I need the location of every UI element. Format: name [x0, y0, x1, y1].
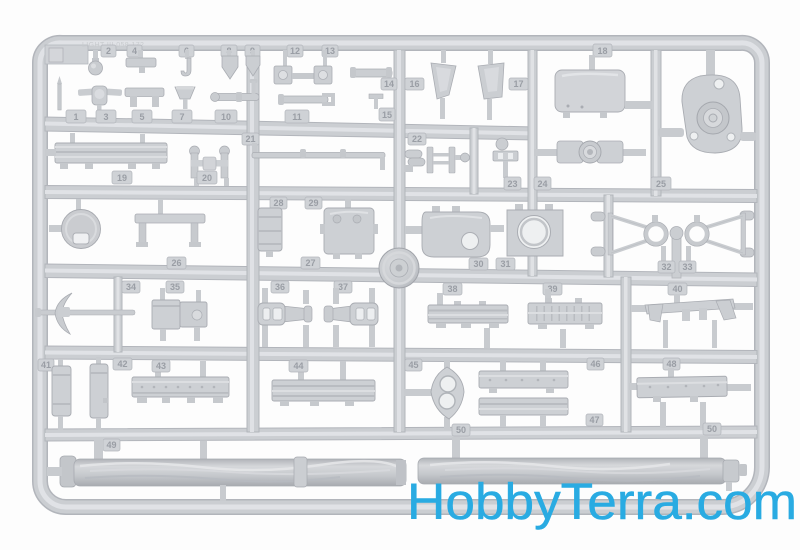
svg-text:17: 17 [513, 79, 523, 89]
svg-text:43: 43 [156, 361, 166, 371]
svg-text:35: 35 [170, 282, 180, 292]
svg-text:7: 7 [179, 112, 184, 122]
svg-text:36: 36 [275, 282, 285, 292]
svg-text:25: 25 [656, 179, 666, 189]
svg-text:4: 4 [132, 46, 137, 56]
svg-text:16: 16 [409, 79, 419, 89]
svg-text:18: 18 [597, 46, 607, 56]
svg-text:50: 50 [707, 424, 717, 434]
svg-text:47: 47 [589, 415, 599, 425]
svg-text:21: 21 [245, 134, 255, 144]
svg-text:11: 11 [292, 112, 302, 122]
svg-text:46: 46 [590, 359, 600, 369]
svg-text:15: 15 [382, 110, 392, 120]
svg-text:26: 26 [171, 258, 181, 268]
svg-text:27: 27 [305, 258, 315, 268]
svg-text:28: 28 [273, 198, 283, 208]
svg-text:12: 12 [290, 46, 300, 56]
svg-text:24: 24 [537, 179, 547, 189]
svg-text:40: 40 [672, 284, 682, 294]
svg-text:41: 41 [41, 360, 51, 370]
svg-text:44: 44 [293, 361, 303, 371]
svg-text:23: 23 [507, 179, 517, 189]
svg-text:45: 45 [408, 360, 418, 370]
svg-text:38: 38 [447, 284, 457, 294]
svg-text:29: 29 [308, 198, 318, 208]
svg-text:49: 49 [106, 440, 116, 450]
svg-text:2: 2 [106, 46, 111, 56]
svg-text:22: 22 [412, 134, 422, 144]
svg-text:5: 5 [139, 112, 144, 122]
svg-text:37: 37 [338, 282, 348, 292]
svg-text:34: 34 [126, 282, 136, 292]
svg-text:HobbyTerra.com: HobbyTerra.com [407, 473, 797, 530]
svg-text:19: 19 [117, 173, 127, 183]
svg-text:14: 14 [384, 79, 394, 89]
svg-text:30: 30 [473, 259, 483, 269]
svg-text:33: 33 [682, 262, 692, 272]
svg-text:20: 20 [202, 173, 212, 183]
svg-text:48: 48 [666, 359, 676, 369]
svg-text:42: 42 [117, 359, 127, 369]
svg-text:10: 10 [221, 112, 231, 122]
svg-text:31: 31 [500, 259, 510, 269]
svg-text:32: 32 [661, 262, 671, 272]
svg-text:50: 50 [456, 425, 466, 435]
svg-text:1: 1 [73, 112, 78, 122]
svg-text:3: 3 [103, 112, 108, 122]
